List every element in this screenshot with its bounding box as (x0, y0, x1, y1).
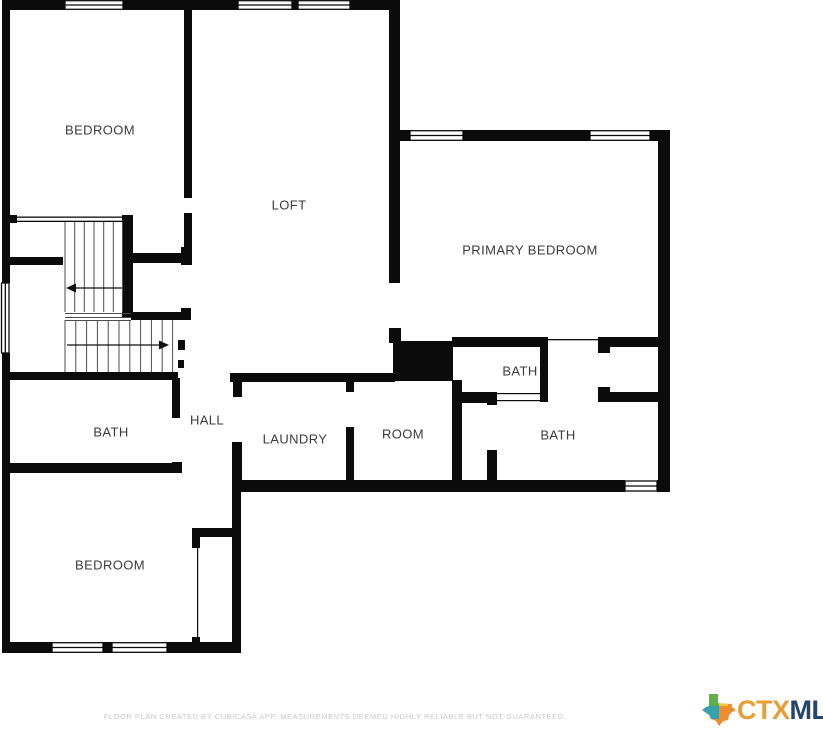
windows (2, 1, 658, 653)
logo-ctx-text: CTX (737, 695, 790, 725)
window-top-loft-1 (238, 1, 292, 10)
walls (2, 0, 670, 653)
texas-yellow-patch (719, 693, 728, 706)
window-top-loft-2 (298, 1, 350, 10)
texas-orange-lower (719, 706, 736, 727)
room-label-bath-right: BATH (540, 428, 575, 443)
texas-orange-tip (711, 719, 726, 727)
room-label-primary-bedroom: PRIMARY BEDROOM (462, 243, 598, 258)
room-label-bedroom-bottom: BEDROOM (75, 558, 145, 573)
disclaimer-text: FLOOR PLAN CREATED BY CUBICASA APP. MEAS… (104, 712, 567, 721)
staircase (65, 222, 173, 372)
logo-wordmark: CTXMLS (737, 693, 823, 727)
window-left-stairs (2, 283, 10, 353)
window-bath-right (625, 481, 657, 491)
floor-plan-page: BEDROOM LOFT PRIMARY BEDROOM BATH BATH H… (0, 0, 823, 729)
room-label-laundry: LAUNDRY (263, 432, 328, 447)
texas-teal-patch (701, 706, 719, 719)
room-label-bath-left: BATH (93, 425, 128, 440)
room-label-room: ROOM (382, 427, 424, 442)
ctxmls-logo: CTXMLS (701, 693, 823, 727)
texas-orange-patch (728, 693, 736, 706)
window-bottom-bedroom-1 (52, 643, 103, 653)
room-label-bath-upper: BATH (502, 364, 537, 379)
window-primary-1 (410, 131, 463, 141)
texas-icon (701, 693, 736, 727)
logo-mls-text: MLS (790, 695, 823, 725)
texas-green-patch (701, 693, 719, 706)
room-label-hall: HALL (190, 413, 224, 428)
window-primary-2 (590, 131, 650, 141)
floor-plan-drawing (0, 0, 823, 729)
arrow-lower-flight (67, 341, 169, 350)
window-bottom-bedroom-2 (112, 643, 167, 653)
room-label-bedroom-top: BEDROOM (65, 123, 135, 138)
room-label-loft: LOFT (272, 198, 307, 213)
window-top-bedroom (65, 1, 123, 10)
